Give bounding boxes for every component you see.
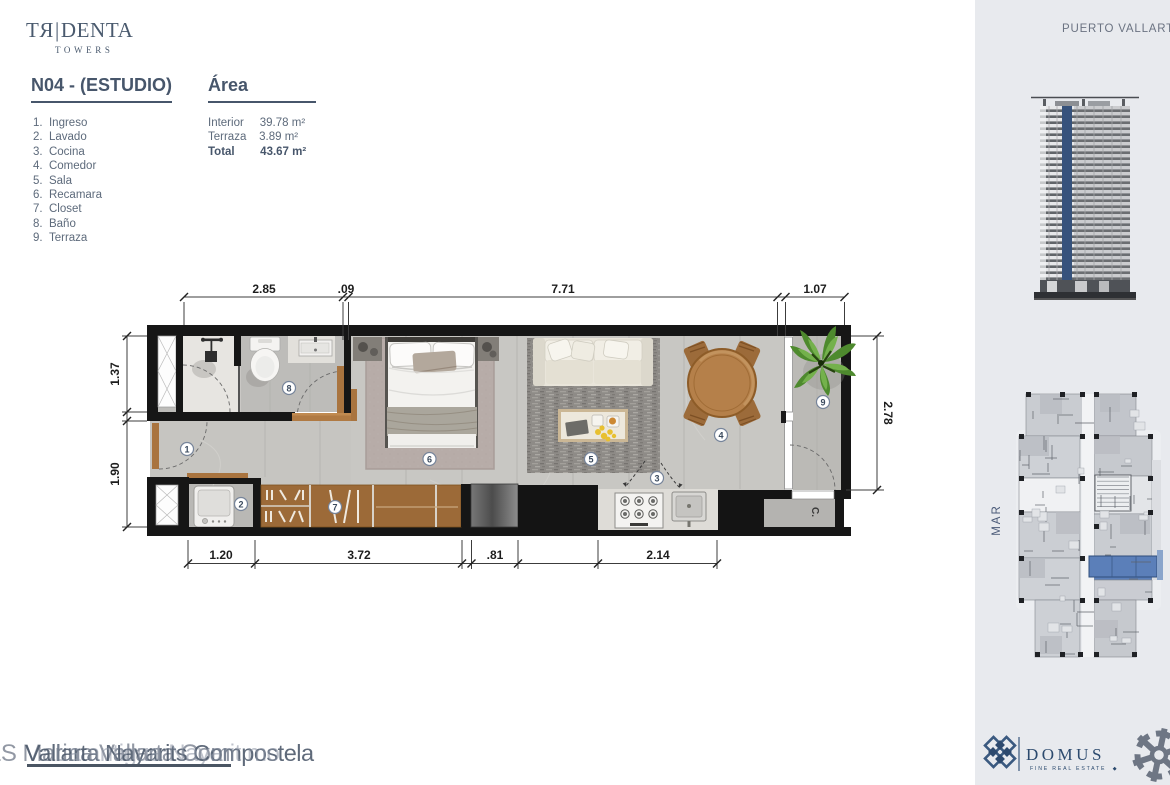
svg-text:.09: .09	[338, 282, 355, 296]
svg-text:2: 2	[238, 499, 243, 509]
svg-text:3.72: 3.72	[347, 548, 371, 562]
svg-text:6: 6	[427, 454, 432, 464]
svg-text:1.20: 1.20	[209, 548, 233, 562]
svg-text:1.37: 1.37	[108, 362, 122, 386]
svg-text:7: 7	[332, 502, 337, 512]
svg-text:C.: C.	[809, 507, 820, 517]
svg-text:9: 9	[820, 397, 825, 407]
svg-text:8: 8	[286, 383, 291, 393]
svg-text:.81: .81	[487, 548, 504, 562]
svg-text:FINE REAL ESTATE ◆: FINE REAL ESTATE ◆	[1030, 766, 1119, 772]
svg-text:2.14: 2.14	[646, 548, 670, 562]
svg-text:DOMUS: DOMUS	[1026, 745, 1105, 764]
svg-text:5: 5	[588, 454, 593, 464]
svg-text:7.71: 7.71	[551, 282, 575, 296]
svg-text:2.85: 2.85	[252, 282, 276, 296]
svg-text:2.78: 2.78	[881, 401, 895, 425]
svg-text:1: 1	[184, 444, 189, 454]
svg-text:3: 3	[654, 473, 659, 483]
svg-text:1.90: 1.90	[108, 462, 122, 486]
svg-text:4: 4	[718, 430, 723, 440]
svg-text:1.07: 1.07	[803, 282, 827, 296]
